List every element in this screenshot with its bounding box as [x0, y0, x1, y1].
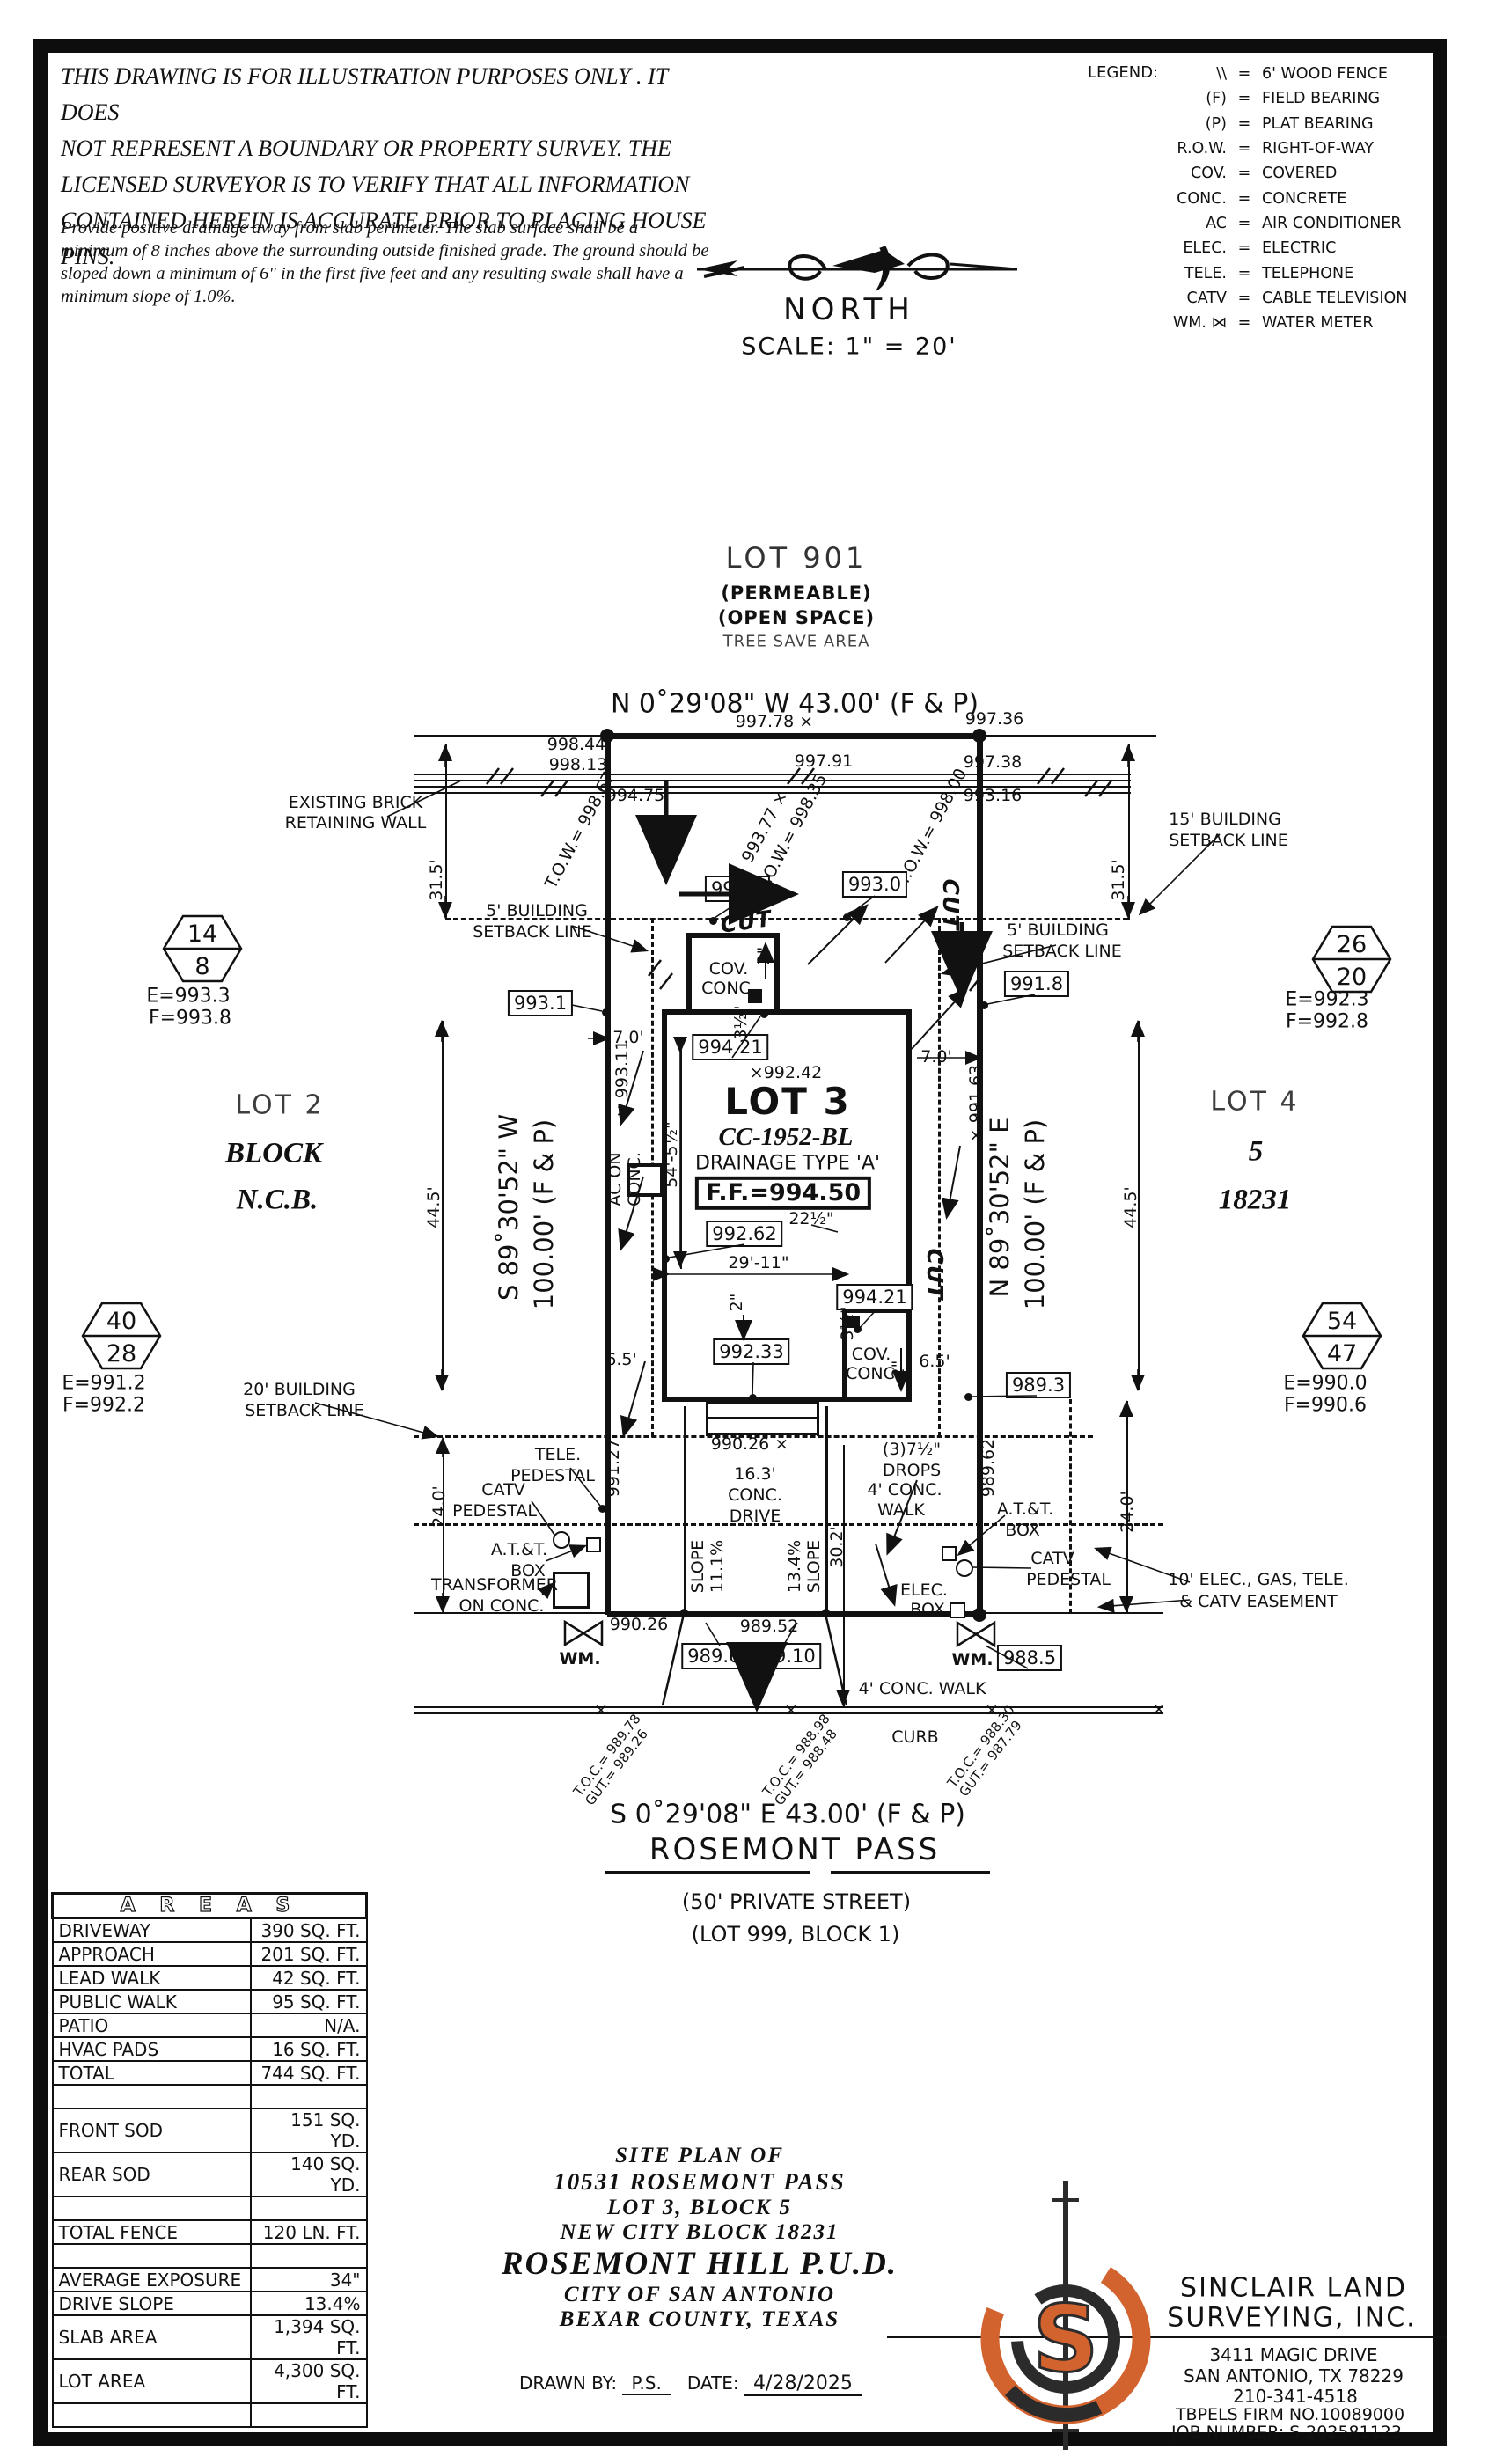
- drainage-arrows: [621, 906, 966, 1603]
- areas-row-label: LOT AREA: [53, 2359, 251, 2403]
- areas-row-5: HVAC PADS16 SQ. FT.: [53, 2037, 367, 2061]
- company-phone: 210-341-4518: [1233, 2386, 1358, 2407]
- title-block-line-6: BEXAR COUNTY, TEXAS: [560, 2307, 840, 2332]
- areas-row-value: 390 SQ. FT.: [251, 1918, 367, 1943]
- areas-row-label: AVERAGE EXPOSURE: [53, 2268, 251, 2292]
- company-name-1: SINCLAIR LAND: [1180, 2273, 1407, 2304]
- areas-row-label: DRIVEWAY: [53, 1918, 251, 1943]
- areas-row-label: PUBLIC WALK: [53, 1990, 251, 2013]
- company-address-1: 3411 MAGIC DRIVE: [1209, 2344, 1377, 2365]
- areas-row-label: [53, 2196, 251, 2220]
- leader-lines: [315, 781, 1220, 1668]
- company-firm: TBPELS FIRM NO.10089000: [1176, 2405, 1404, 2424]
- drawn-by-row: DRAWN BY: P.S. DATE: 4/28/2025: [519, 2372, 862, 2394]
- areas-row-value: 34": [251, 2268, 367, 2292]
- areas-row-label: TOTAL: [53, 2061, 251, 2085]
- areas-row-value: 4,300 SQ. FT.: [251, 2359, 367, 2403]
- company-name-2: SURVEYING, INC.: [1167, 2303, 1416, 2334]
- areas-row-4: PATION/A.: [53, 2013, 367, 2037]
- areas-row-label: DRIVE SLOPE: [53, 2292, 251, 2315]
- hatch-ticks: [487, 768, 1111, 991]
- areas-row-value: 120 LN. FT.: [251, 2220, 367, 2244]
- drawn-by-label: DRAWN BY:: [519, 2372, 617, 2394]
- areas-row-1: APPROACH201 SQ. FT.: [53, 1942, 367, 1966]
- areas-row-label: APPROACH: [53, 1942, 251, 1966]
- areas-row-value: 140 SQ. YD.: [251, 2152, 367, 2196]
- areas-row-label: TOTAL FENCE: [53, 2220, 251, 2244]
- areas-row-label: PATIO: [53, 2013, 251, 2037]
- areas-row-value: 201 SQ. FT.: [251, 1942, 367, 1966]
- areas-row-label: HVAC PADS: [53, 2037, 251, 2061]
- areas-row-value: [251, 2196, 367, 2220]
- areas-row-value: 42 SQ. FT.: [251, 1966, 367, 1990]
- date-value: 4/28/2025: [744, 2372, 862, 2396]
- title-block-line-0: SITE PLAN OF: [615, 2144, 784, 2168]
- cut-arrows: [666, 781, 962, 1704]
- areas-row-value: 151 SQ. YD.: [251, 2108, 367, 2152]
- company-job: JOB NUMBER: S-202581123: [1171, 2423, 1402, 2442]
- areas-row-0: DRIVEWAY390 SQ. FT.: [53, 1918, 367, 1943]
- areas-row-value: [251, 2085, 367, 2108]
- areas-row-value: 744 SQ. FT.: [251, 2061, 367, 2085]
- areas-table: A R E A SDRIVEWAY390 SQ. FT.APPROACH201 …: [51, 1892, 368, 2428]
- areas-row-2: LEAD WALK42 SQ. FT.: [53, 1966, 367, 1990]
- areas-row-9: REAR SOD140 SQ. YD.: [53, 2152, 367, 2196]
- areas-row-value: 13.4%: [251, 2292, 367, 2315]
- areas-row-value: [251, 2403, 367, 2427]
- areas-row-10: [53, 2196, 367, 2220]
- areas-row-label: REAR SOD: [53, 2152, 251, 2196]
- areas-row-6: TOTAL744 SQ. FT.: [53, 2061, 367, 2085]
- areas-row-8: FRONT SOD151 SQ. YD.: [53, 2108, 367, 2152]
- areas-row-13: AVERAGE EXPOSURE34": [53, 2268, 367, 2292]
- areas-row-12: [53, 2244, 367, 2268]
- date-label: DATE:: [687, 2372, 739, 2394]
- title-block-line-4: ROSEMONT HILL P.U.D.: [502, 2245, 898, 2283]
- title-block-line-1: 10531 ROSEMONT PASS: [554, 2168, 846, 2196]
- areas-table-title: A R E A S: [53, 1894, 367, 1918]
- areas-row-value: 1,394 SQ. FT.: [251, 2315, 367, 2359]
- areas-row-label: FRONT SOD: [53, 2108, 251, 2152]
- areas-row-value: [251, 2244, 367, 2268]
- areas-row-16: LOT AREA4,300 SQ. FT.: [53, 2359, 367, 2403]
- title-block-line-2: LOT 3, BLOCK 5: [607, 2196, 792, 2220]
- sinclair-logo: S: [966, 2181, 1165, 2450]
- areas-row-3: PUBLIC WALK95 SQ. FT.: [53, 1990, 367, 2013]
- areas-row-label: [53, 2085, 251, 2108]
- areas-row-label: LEAD WALK: [53, 1966, 251, 1990]
- drawn-by-value: P.S.: [622, 2372, 670, 2395]
- areas-row-label: [53, 2244, 251, 2268]
- areas-row-7: [53, 2085, 367, 2108]
- areas-row-11: TOTAL FENCE120 LN. FT.: [53, 2220, 367, 2244]
- areas-row-label: [53, 2403, 251, 2427]
- areas-row-14: DRIVE SLOPE13.4%: [53, 2292, 367, 2315]
- logo-letter: S: [1033, 2285, 1099, 2393]
- areas-row-value: 95 SQ. FT.: [251, 1990, 367, 2013]
- areas-row-17: [53, 2403, 367, 2427]
- company-address-2: SAN ANTONIO, TX 78229: [1184, 2365, 1404, 2387]
- areas-row-value: N/A.: [251, 2013, 367, 2037]
- areas-row-label: SLAB AREA: [53, 2315, 251, 2359]
- areas-row-value: 16 SQ. FT.: [251, 2037, 367, 2061]
- title-block-line-3: NEW CITY BLOCK 18231: [560, 2220, 839, 2245]
- title-block-line-5: CITY OF SAN ANTONIO: [564, 2283, 835, 2307]
- areas-row-15: SLAB AREA1,394 SQ. FT.: [53, 2315, 367, 2359]
